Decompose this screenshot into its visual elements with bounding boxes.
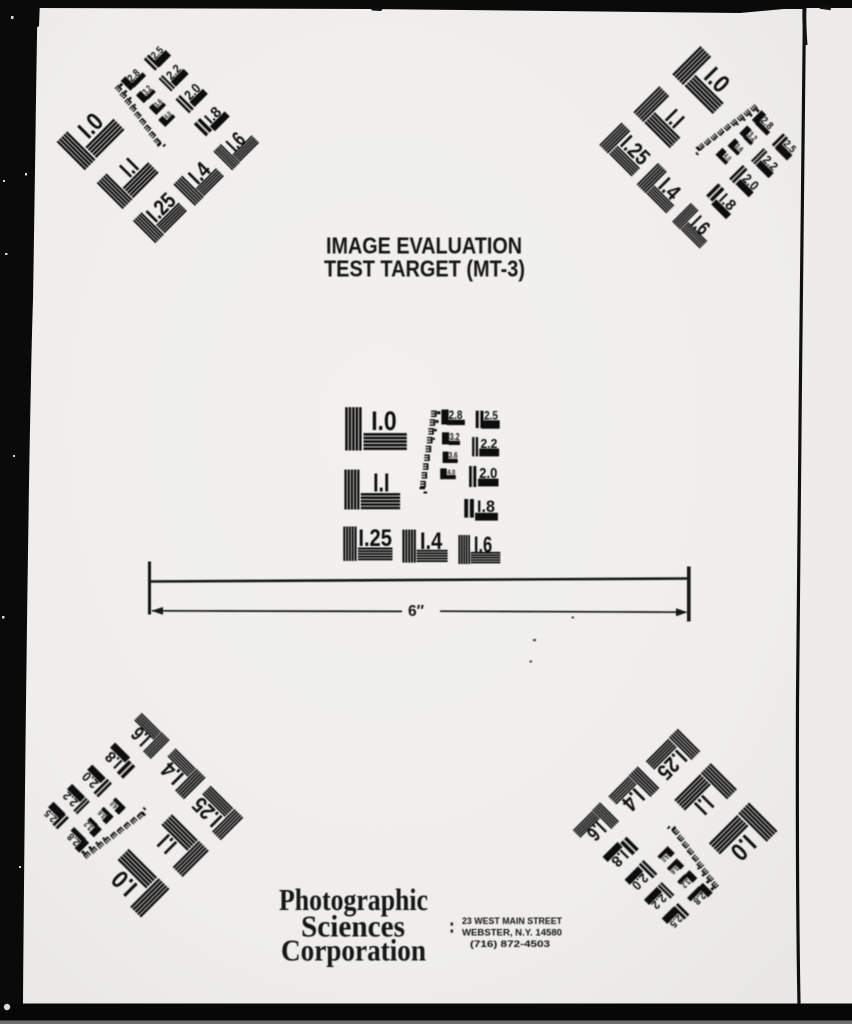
svg-text:(716) 872-4503: (716) 872-4503 bbox=[470, 939, 550, 950]
svg-text:Corporation: Corporation bbox=[281, 934, 426, 968]
svg-text:TEST TARGET (MT-3): TEST TARGET (MT-3) bbox=[324, 256, 525, 282]
svg-text:23 WEST MAIN STREET: 23 WEST MAIN STREET bbox=[462, 916, 562, 927]
svg-text:6″: 6″ bbox=[408, 603, 425, 620]
svg-text:WEBSTER, N.Y. 14580: WEBSTER, N.Y. 14580 bbox=[462, 928, 562, 939]
